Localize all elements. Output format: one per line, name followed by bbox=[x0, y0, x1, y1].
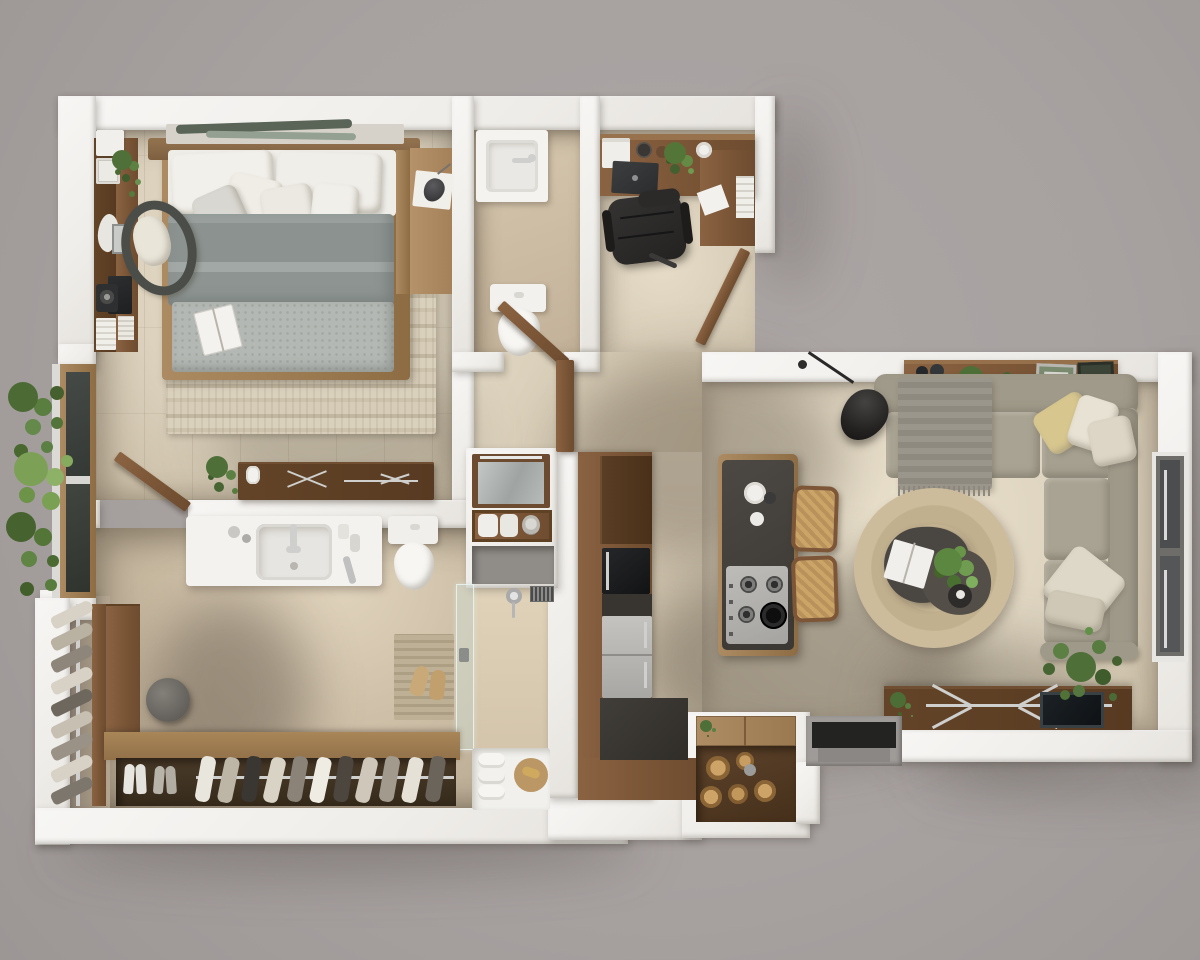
balcony-window-divider bbox=[66, 476, 90, 484]
rolled-towel bbox=[478, 753, 505, 768]
corner-plant bbox=[1066, 652, 1096, 682]
console-plant bbox=[112, 150, 132, 170]
rolled-towel bbox=[478, 769, 505, 784]
hall-door-panel bbox=[556, 360, 574, 452]
storage-jar bbox=[728, 784, 748, 804]
mirror-cabinet-glass bbox=[478, 462, 544, 504]
coffee-table-bowl-dot bbox=[956, 590, 965, 599]
cooktop-grate bbox=[760, 602, 787, 629]
floor-shoe bbox=[135, 764, 147, 794]
closet-pouf bbox=[146, 678, 190, 722]
floor-shoe bbox=[165, 766, 177, 795]
entry-threshold-dark bbox=[812, 722, 896, 748]
kitchen-cabinet-band-bottom bbox=[578, 758, 702, 800]
toiletry-funnel bbox=[522, 515, 540, 535]
toilet-flush-button bbox=[410, 524, 420, 530]
bathroom-toilet-tank bbox=[388, 516, 438, 544]
coffee-table-plant bbox=[934, 548, 962, 576]
island-cup-small bbox=[750, 512, 764, 526]
vanity-tumbler bbox=[338, 524, 349, 539]
wall-office-right bbox=[755, 96, 775, 253]
jar-niche-lid bbox=[696, 716, 796, 746]
wall-left bbox=[58, 96, 96, 352]
storage-jar bbox=[700, 786, 722, 808]
shower-glass-handle bbox=[459, 648, 469, 662]
fridge-handle bbox=[644, 662, 647, 688]
wall-living-bottom bbox=[898, 730, 1192, 762]
basin-faucet-base bbox=[528, 154, 536, 162]
storage-jar bbox=[754, 780, 776, 802]
metal-canister bbox=[744, 764, 756, 776]
shower-vent-grille bbox=[530, 586, 554, 602]
counter-stool bbox=[791, 485, 839, 553]
vanity-faucet-head bbox=[286, 546, 301, 553]
living-window-handle bbox=[1164, 570, 1167, 648]
dresser-plant bbox=[206, 456, 228, 478]
oven-handle bbox=[606, 552, 609, 590]
cooktop-knobs bbox=[729, 574, 733, 636]
jar-niche-lid-seam bbox=[744, 716, 746, 746]
balcony-window-pane bbox=[66, 372, 90, 476]
coffee-cup bbox=[696, 142, 712, 158]
speaker-cone bbox=[100, 290, 114, 304]
desk-bowl bbox=[636, 142, 652, 158]
fridge-handle bbox=[644, 622, 647, 648]
vanity-jewelry bbox=[228, 526, 240, 538]
balcony-plant bbox=[8, 382, 38, 412]
soap-pump bbox=[350, 534, 360, 552]
shoe-rack-board bbox=[92, 604, 106, 806]
floor-lamp-joint bbox=[798, 360, 807, 369]
basin-drain bbox=[290, 562, 298, 570]
floor-shoe bbox=[123, 764, 135, 795]
bed-duvet bbox=[168, 214, 394, 306]
living-window-handle bbox=[1164, 470, 1167, 540]
laptop-logo bbox=[632, 175, 638, 181]
entry-step bbox=[818, 748, 890, 762]
storage-jar bbox=[706, 756, 730, 780]
island-carafe bbox=[764, 492, 776, 504]
toilet-button bbox=[514, 292, 524, 298]
shoe-bench-top bbox=[104, 732, 460, 760]
built-in-oven bbox=[602, 548, 650, 594]
living-window-pane bbox=[1160, 460, 1180, 548]
balcony-window-pane bbox=[66, 484, 90, 592]
wall-closet-bottom bbox=[35, 808, 628, 844]
cooktop-burner bbox=[738, 606, 755, 623]
fridge-door-seam bbox=[602, 654, 652, 656]
niche-plant-sprig bbox=[700, 720, 712, 732]
wall-bedroom-right-upper bbox=[452, 96, 474, 368]
island-cup bbox=[744, 482, 766, 504]
sofa-throw bbox=[898, 378, 992, 490]
washbasin bbox=[486, 140, 538, 192]
tv-flat-panel bbox=[1040, 692, 1104, 728]
balcony-palm bbox=[14, 452, 48, 486]
kitchen-corner-counter bbox=[600, 698, 688, 760]
wall-kitchen-bottom bbox=[548, 796, 702, 840]
wall-toilet-room-bottom-left bbox=[452, 352, 504, 372]
books-in-niche bbox=[736, 176, 754, 218]
shower-hose bbox=[512, 602, 515, 618]
mirror-light-bar bbox=[480, 456, 542, 459]
kitchen-counter-mid bbox=[602, 594, 652, 616]
shower-glass-panel bbox=[456, 584, 474, 750]
living-window-pane bbox=[1160, 556, 1180, 652]
candle-jar bbox=[246, 466, 260, 484]
bed-side-bench bbox=[396, 150, 410, 294]
wall-entry-stub bbox=[796, 762, 820, 824]
books-stack bbox=[118, 316, 134, 340]
cooktop-burner bbox=[740, 576, 757, 593]
wall-toilet-room-right bbox=[580, 96, 600, 352]
balcony-plant bbox=[6, 512, 36, 542]
cooktop-burner bbox=[766, 576, 783, 593]
books-stack bbox=[96, 318, 116, 350]
floor-plan-render bbox=[0, 0, 1200, 960]
kitchen-pantry-front bbox=[600, 456, 652, 544]
rolled-towel bbox=[478, 514, 498, 537]
rolled-towel bbox=[500, 514, 518, 537]
rolled-towel bbox=[478, 785, 505, 800]
vanity-jewelry bbox=[242, 534, 251, 543]
desk-plant bbox=[664, 142, 686, 164]
wall-niche-gray bbox=[472, 546, 554, 584]
sideboard-plant bbox=[890, 692, 906, 708]
counter-stool bbox=[791, 555, 839, 623]
sofa-pillow-cream bbox=[1086, 414, 1139, 468]
